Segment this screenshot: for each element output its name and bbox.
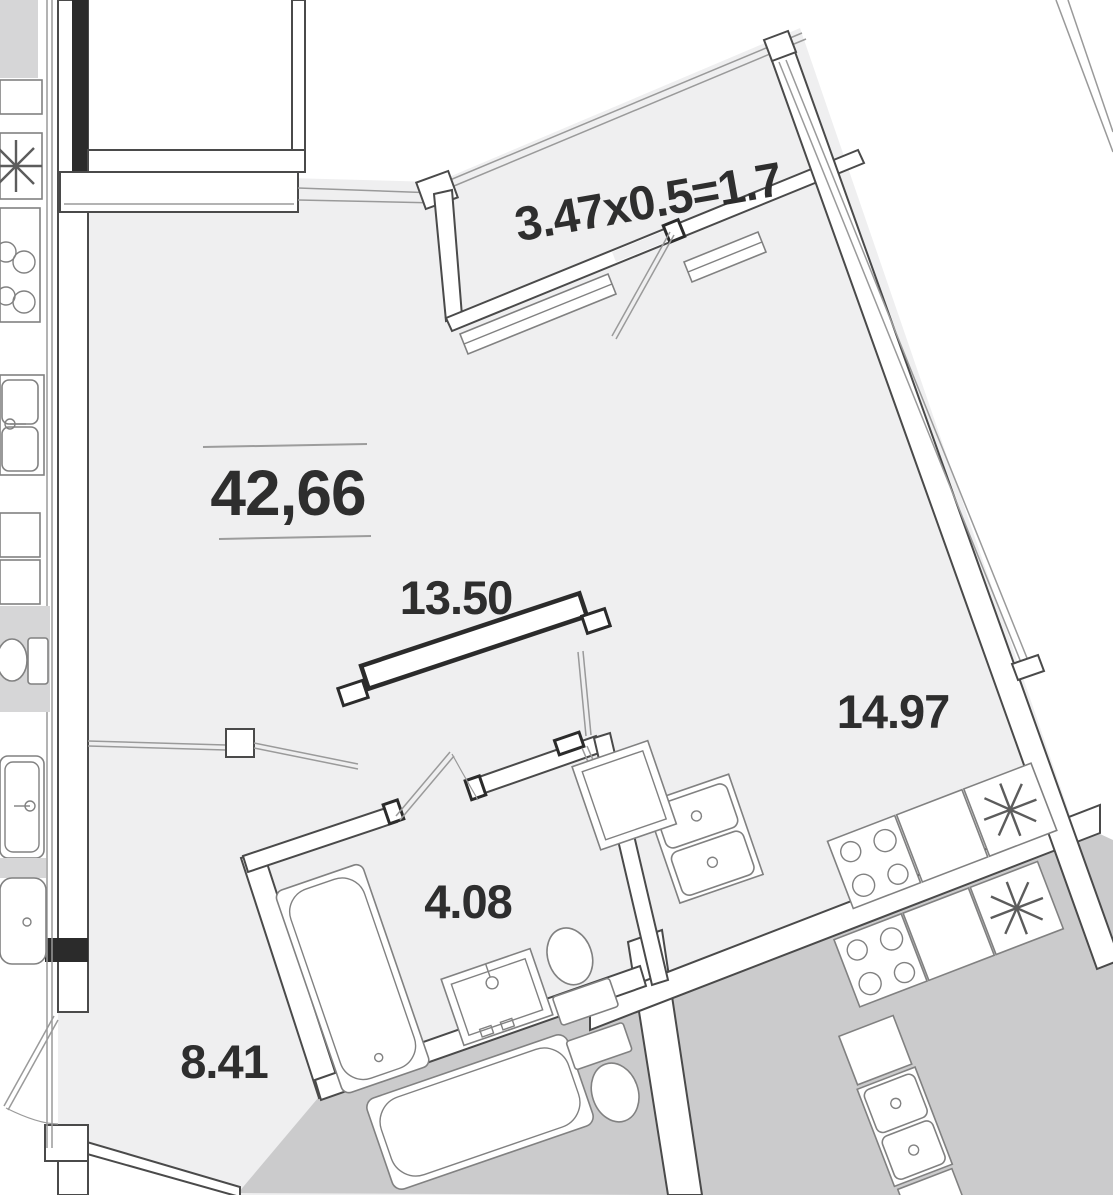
kitchen-label: 14.97 <box>837 685 950 738</box>
washbasin-icon <box>0 756 44 858</box>
entrance-door-swing-icon <box>4 1016 58 1124</box>
bathroom-label: 4.08 <box>424 875 511 928</box>
living-room-label: 13.50 <box>400 571 513 624</box>
double-sink-icon <box>0 375 44 475</box>
total-area-label: 42,66 <box>210 457 365 529</box>
shower-tub-icon <box>0 878 46 964</box>
fridge-star-icon <box>0 133 42 199</box>
stove-burners-icon <box>0 208 40 322</box>
neighbor-above-walls <box>88 0 305 172</box>
lower-unit-partial-label: 4.38 <box>525 1187 619 1195</box>
floor-plan-drawing: 3.47x0.5=1.7 42,66 13.50 14.97 4.08 8.41… <box>0 0 1113 1195</box>
floor-plan-page: 3.47x0.5=1.7 42,66 13.50 14.97 4.08 8.41… <box>0 0 1113 1195</box>
neighbor-left-strip <box>0 0 50 964</box>
hallway-label: 8.41 <box>180 1035 267 1088</box>
